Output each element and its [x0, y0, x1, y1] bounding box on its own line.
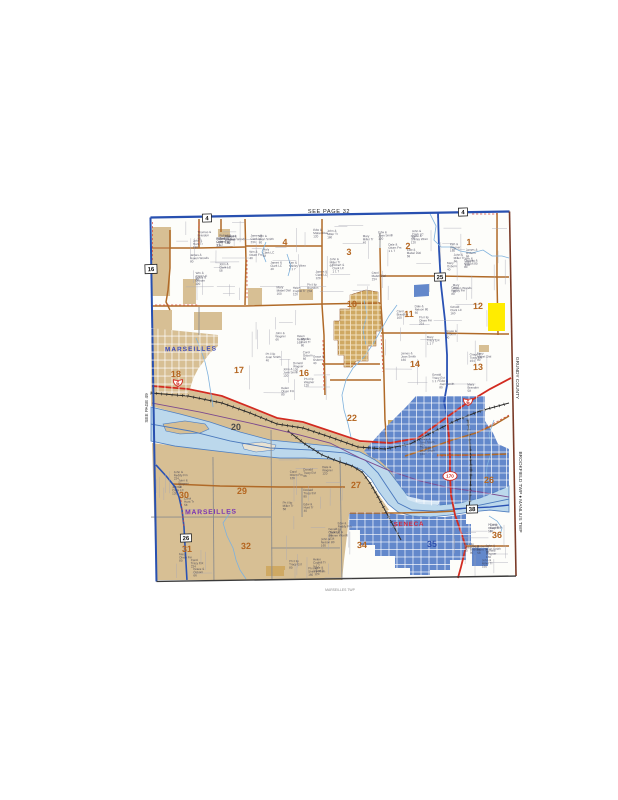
svg-text:13: 13 [473, 362, 483, 372]
svg-text:16: 16 [299, 368, 309, 378]
svg-text:35: 35 [427, 539, 437, 549]
svg-text:26: 26 [484, 475, 494, 485]
svg-text:12: 12 [473, 301, 483, 311]
svg-text:MARSEILLES TWP: MARSEILLES TWP [325, 588, 355, 592]
svg-text:26: 26 [183, 536, 191, 542]
svg-text:36: 36 [492, 530, 502, 540]
svg-text:18: 18 [171, 369, 181, 379]
svg-text:170: 170 [446, 474, 454, 479]
svg-text:27: 27 [351, 480, 361, 490]
svg-text:34: 34 [357, 540, 367, 550]
svg-text:MARSEILLES: MARSEILLES [185, 509, 237, 517]
svg-text:20: 20 [231, 422, 241, 432]
svg-text:SEE PAGE 49: SEE PAGE 49 [144, 393, 149, 423]
svg-text:BROOKFIELD TWP ♦ MANLIUS TWP: BROOKFIELD TWP ♦ MANLIUS TWP [517, 451, 523, 532]
svg-text:SENECA: SENECA [394, 521, 425, 528]
svg-text:10: 10 [347, 299, 357, 309]
svg-text:31: 31 [182, 544, 192, 554]
svg-text:38: 38 [469, 507, 477, 513]
svg-text:25: 25 [437, 275, 445, 281]
svg-text:MARSEILLES: MARSEILLES [165, 346, 217, 354]
svg-text:30: 30 [179, 490, 189, 500]
svg-text:1: 1 [466, 237, 471, 247]
svg-text:17: 17 [234, 365, 244, 375]
svg-text:32: 32 [241, 541, 251, 551]
svg-text:3: 3 [346, 247, 351, 257]
svg-text:4: 4 [282, 237, 287, 247]
svg-text:11: 11 [404, 309, 414, 319]
svg-text:SEE PAGE 32: SEE PAGE 32 [308, 209, 350, 215]
svg-text:16: 16 [148, 267, 156, 273]
svg-text:2: 2 [405, 241, 410, 251]
svg-text:22: 22 [347, 413, 357, 423]
svg-text:29: 29 [237, 486, 247, 496]
svg-text:GRUNDY COUNTY: GRUNDY COUNTY [514, 357, 520, 400]
svg-text:14: 14 [410, 359, 420, 369]
